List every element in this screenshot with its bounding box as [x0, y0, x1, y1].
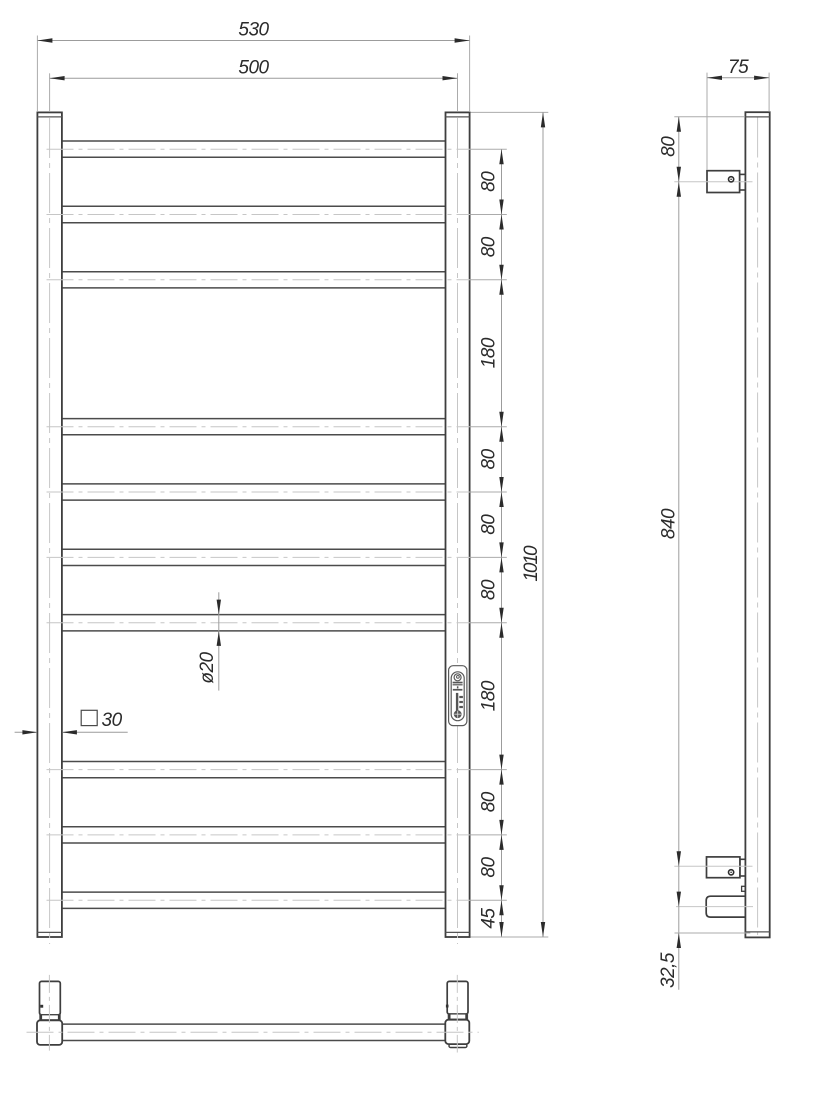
svg-text:80: 80 [479, 236, 500, 257]
svg-text:ø20: ø20 [197, 651, 218, 683]
svg-text:80: 80 [479, 857, 500, 878]
svg-text:80: 80 [479, 171, 500, 192]
svg-text:500: 500 [238, 57, 269, 78]
svg-text:80: 80 [479, 514, 500, 535]
svg-text:180: 180 [479, 680, 500, 711]
svg-text:180: 180 [479, 337, 500, 368]
svg-text:45: 45 [479, 908, 500, 929]
svg-text:32,5: 32,5 [658, 952, 679, 988]
svg-text:80: 80 [479, 579, 500, 600]
svg-text:840: 840 [659, 508, 680, 539]
svg-text:530: 530 [238, 20, 269, 41]
svg-text:80: 80 [479, 791, 500, 812]
svg-text:75: 75 [728, 57, 749, 78]
svg-text:80: 80 [479, 448, 500, 469]
svg-text:30: 30 [102, 710, 123, 731]
svg-text:80: 80 [659, 136, 680, 157]
svg-text:1010: 1010 [521, 545, 542, 582]
